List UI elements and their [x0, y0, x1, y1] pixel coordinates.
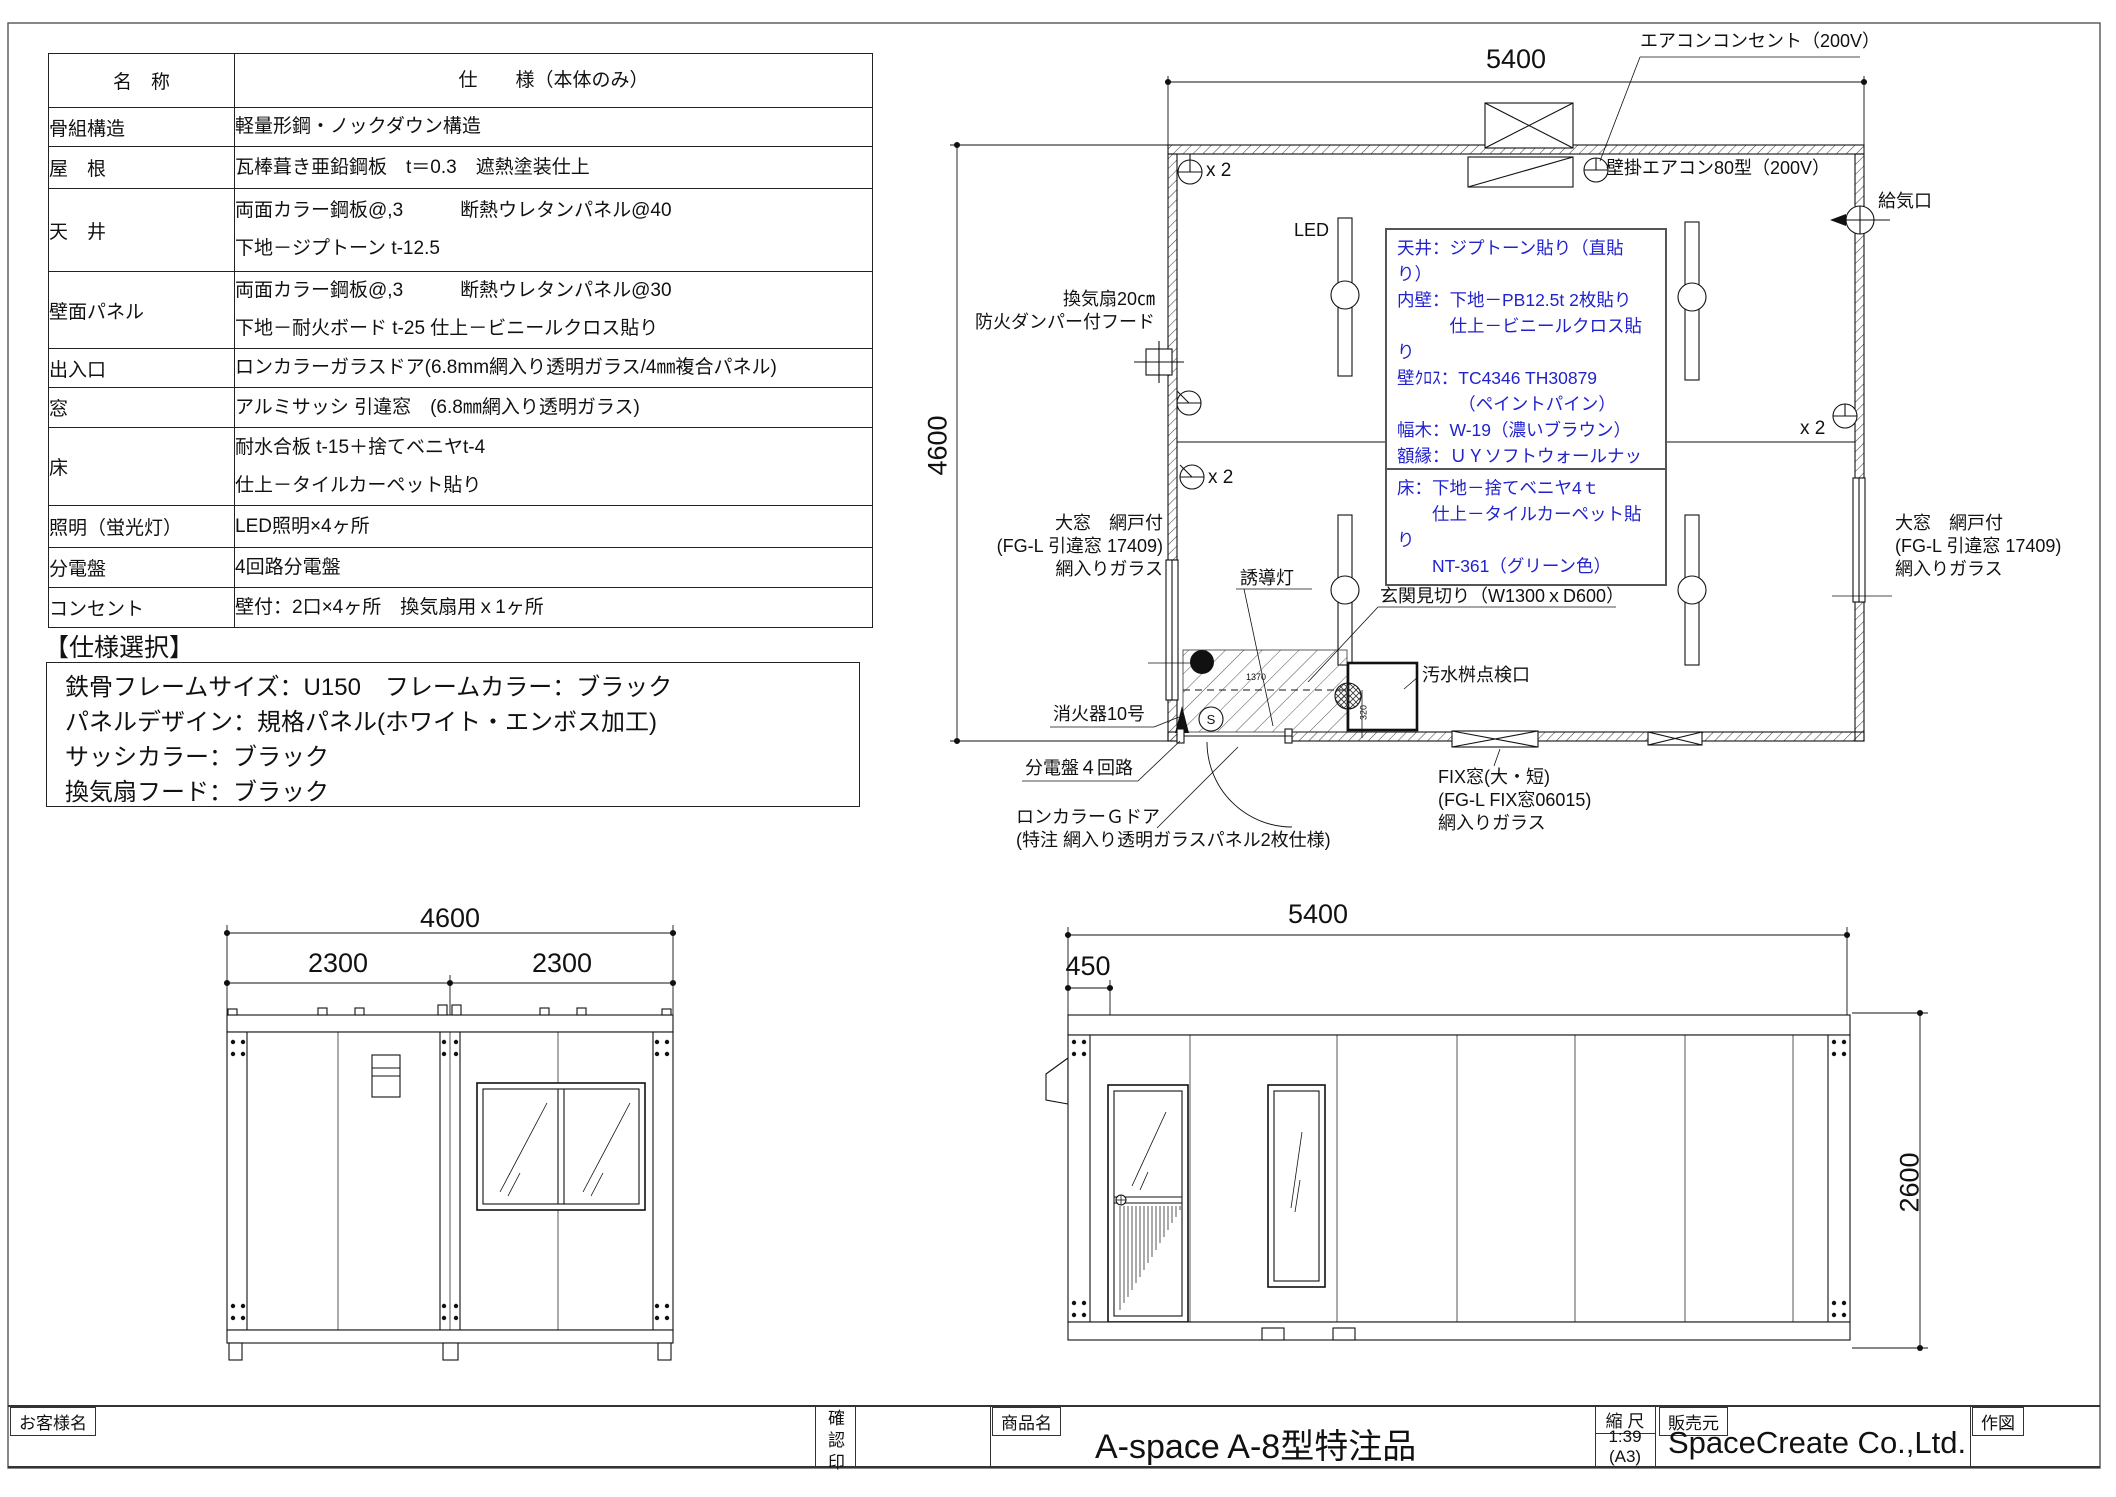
elevation-side [224, 925, 675, 1360]
note-aircon-outlet: エアコンコンセント（200V） [1640, 30, 1880, 53]
drawn-by-label: 作図 [1972, 1407, 2024, 1436]
note-outlet-x2: x 2 [1206, 159, 1231, 183]
spec-header-row: 名 称 仕 様（本体のみ） [49, 54, 873, 108]
spec-row: 壁面パネル両面カラー鋼板@,3 断熱ウレタンパネル@30 下地－耐火ボード t-… [49, 272, 873, 349]
finish-note-upper: 天井：ジプトーン貼り（直貼り） 内壁：下地－PB12.5t 2枚貼り 仕上－ビニ… [1385, 228, 1667, 502]
note-entrance: 玄関見切り（W1300ｘD600） [1380, 585, 1624, 608]
spec-header-spec: 仕 様（本体のみ） [235, 54, 873, 108]
side-window [477, 1083, 645, 1210]
note-drain: 汚水桝点検口 [1422, 664, 1530, 687]
front-fan-hood [1046, 1058, 1068, 1104]
product-name: A-space A-8型特注品 [1095, 1419, 1416, 1468]
note-exit-light: 誘導灯 [1240, 567, 1294, 590]
spec-table: 名 称 仕 様（本体のみ） 骨組構造軽量形鋼・ノックダウン構造 屋 根瓦棒葺き亜… [48, 53, 873, 628]
plan-dim-width: 5400 [1456, 44, 1576, 75]
scale-value: 1:39 [1595, 1427, 1655, 1447]
switch-letter: S [1207, 712, 1216, 727]
note-window-right: 大窓 網戸付 (FG-L 引違窓 17409) 網入りガラス [1895, 512, 2061, 581]
note-wall-aircon: 壁掛エアコン80型（200V） [1606, 157, 1830, 180]
roof-lugs [228, 1005, 671, 1015]
note-extinguisher: 消火器10号 [1053, 703, 1145, 726]
selection-line: パネルデザイン：規格パネル(ホワイト・エンボス加工) [65, 705, 859, 740]
plan-top-vent [1485, 103, 1573, 148]
selection-line: サッシカラー：ブラック [65, 740, 859, 775]
dim-entry-width: 1370 [1246, 673, 1266, 682]
note-outlet-x2: x 2 [1800, 417, 1825, 441]
side-vent-box [372, 1055, 400, 1097]
customer-name-label: お客様名 [10, 1407, 96, 1436]
product-name-label: 商品名 [992, 1407, 1061, 1436]
elev-front-dim-total: 5400 [1258, 899, 1378, 930]
spec-row: 照明（蛍光灯）LED照明×4ヶ所 [49, 506, 873, 548]
spec-header-name: 名 称 [49, 54, 235, 108]
selection-heading: 【仕様選択】 [44, 628, 194, 664]
spec-row: 窓アルミサッシ 引違窓 (6.8㎜網入り透明ガラス) [49, 388, 873, 428]
note-fix-window: FIX窓(大・短) (FG-L FIX窓06015) 網入りガラス [1438, 766, 1591, 835]
elev-front-dim-offset: 450 [1058, 951, 1118, 982]
drawing-sheet: S [0, 0, 2116, 1497]
plan-dim-height: 4600 [923, 396, 954, 496]
elev-front-dim-height: 2600 [1895, 1133, 1926, 1233]
front-fix-window [1268, 1085, 1325, 1287]
spec-row: 屋 根瓦棒葺き亜鉛鋼板 t＝0.3 遮熱塗装仕上 [49, 147, 873, 189]
selection-line: 鉄骨フレームサイズ：U150 フレームカラー：ブラック [65, 670, 859, 705]
note-panel: 分電盤４回路 [1025, 757, 1133, 780]
elev-side-dim-left: 2300 [278, 948, 398, 979]
plan-sliding-window-left [1166, 560, 1178, 700]
spec-row: 骨組構造軽量形鋼・ノックダウン構造 [49, 108, 873, 147]
confirm-stamp-label: 確認印 [822, 1409, 847, 1475]
finish-note-floor: 床：下地－捨てベニヤ4ｔ 仕上－タイルカーペット貼り NT-361（グリーン色） [1385, 468, 1667, 586]
spec-row: 出入口ロンカラーガラスドア(6.8mm網入り透明ガラス/4㎜複合パネル) [49, 349, 873, 388]
note-window-left: 大窓 網戸付 (FG-L 引違窓 17409) 網入りガラス [943, 512, 1163, 581]
scale-paper-size: (A3) [1595, 1447, 1655, 1467]
plan-fix-window-large [1452, 731, 1538, 747]
plan-fix-window-short [1648, 732, 1702, 745]
note-vent-fan: 換気扇20㎝ 防火ダンパー付フード [935, 288, 1155, 334]
front-door [1108, 1085, 1188, 1322]
selection-box: 鉄骨フレームサイズ：U150 フレームカラー：ブラック パネルデザイン：規格パネ… [46, 662, 860, 807]
plan-sliding-window-right [1853, 478, 1865, 602]
spec-row: 天 井両面カラー鋼板@,3 断熱ウレタンパネル@40 下地－ジプトーン t-12… [49, 189, 873, 272]
elevation-front [1046, 927, 1928, 1351]
note-air-inlet: 給気口 [1878, 190, 1932, 213]
selection-line: 換気扇フード：ブラック [65, 775, 859, 810]
plan-wall-aircon-symbol [1468, 157, 1573, 187]
note-led: LED [1294, 219, 1329, 242]
elev-side-dim-total: 4600 [390, 903, 510, 934]
elev-side-dim-right: 2300 [502, 948, 622, 979]
note-outlet-x2: x 2 [1208, 466, 1233, 490]
seller-name: SpaceCreate Co.,Ltd. [1668, 1425, 1966, 1461]
spec-row: 床耐水合板 t-15＋捨てベニヤt-4 仕上－タイルカーペット貼り [49, 428, 873, 506]
exit-light-symbol [1190, 650, 1214, 674]
drain-pit-symbol [1335, 683, 1361, 709]
spec-row: コンセント壁付：2口×4ヶ所 換気扇用ｘ1ヶ所 [49, 588, 873, 628]
note-door: ロンカラーＧドア (特注 網入り透明ガラスパネル2枚仕様) [1016, 806, 1331, 852]
dim-drain-offset: 320 [1360, 701, 1369, 725]
spec-row: 分電盤4回路分電盤 [49, 548, 873, 588]
